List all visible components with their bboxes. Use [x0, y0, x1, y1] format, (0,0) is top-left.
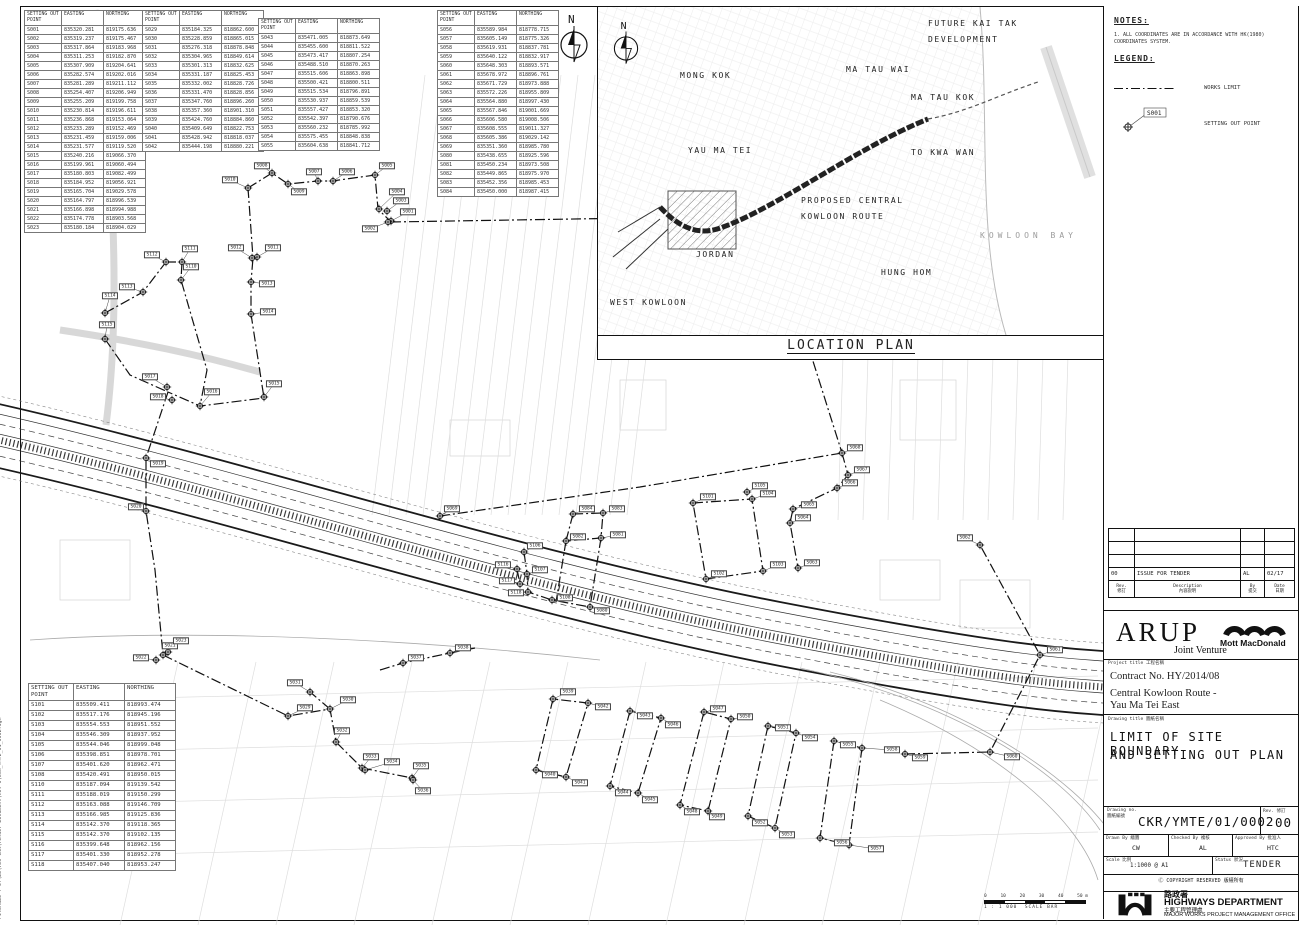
table-row: S113835166.985819125.836 [29, 811, 176, 821]
setting-out-point-marker [833, 484, 841, 492]
table-row: S031835276.318818878.848 [143, 44, 264, 53]
table-row: S044835455.600818811.522 [259, 43, 380, 52]
setting-out-point-marker [789, 505, 797, 513]
table-row: S030835228.859818865.015 [143, 35, 264, 44]
scale-bar-tick: 50 m [1077, 894, 1088, 899]
scale-bar-tick: 10 [1000, 894, 1005, 899]
table-row: S058835619.931818837.781 [438, 44, 559, 53]
table-row: S051835557.427818853.320 [259, 106, 380, 115]
setting-out-point-marker [569, 510, 577, 518]
setting-out-point-marker [244, 184, 252, 192]
table-row: S021835166.898818994.988 [25, 206, 146, 215]
table-row: S004835311.253819182.870 [25, 53, 146, 62]
table-row: S045835473.417818807.254 [259, 52, 380, 61]
scale-value: 1:1000 @ A1 [1130, 863, 1168, 869]
setting-out-point-marker [586, 603, 594, 611]
revision-header-row: Rev.修訂 Description內容說明 By提交 Date日期 [1109, 581, 1295, 598]
table-row: S017835180.803819082.499 [25, 170, 146, 179]
setting-out-point-marker [901, 750, 909, 758]
svg-text:S001: S001 [1147, 110, 1162, 117]
table-row: S103835554.553818951.552 [29, 721, 176, 731]
setting-out-point-marker [676, 801, 684, 809]
setting-out-point-marker [284, 712, 292, 720]
table-row: S006835282.574819202.016 [25, 71, 146, 80]
setting-out-point-marker [139, 288, 147, 296]
table-row: S105835544.046818999.048 [29, 741, 176, 751]
table-row: S061835678.972818896.761 [438, 71, 559, 80]
table-row: S012835233.289819152.469 [25, 125, 146, 134]
setting-out-point-marker [260, 393, 268, 401]
table-row: S108835420.491818950.015 [29, 771, 176, 781]
drawn-by-cell: Drawn By 繪圖 CW [1104, 834, 1168, 856]
setting-out-point-marker [786, 519, 794, 527]
coordinate-table: SETTING OUT POINTEASTINGNORTHINGS0568355… [437, 10, 559, 197]
table-row: S104835546.309818937.952 [29, 731, 176, 741]
table-row: S066835606.580819008.506 [438, 116, 559, 125]
checked-by-label: Checked By 複核 [1171, 835, 1210, 841]
table-row: S019835165.704819029.578 [25, 188, 146, 197]
setting-out-point-marker [523, 570, 531, 578]
setting-out-point-marker [284, 180, 292, 188]
setting-out-point-marker [702, 575, 710, 583]
table-row: S011835236.868819153.064 [25, 116, 146, 125]
works-limit-label: WORKS LIMIT [1204, 85, 1240, 91]
table-row: S041835428.942818818.037 [143, 134, 264, 143]
works-limit-chain [748, 726, 796, 828]
project-title-box: Project title 工程名稱 Contract No. HY/2014/… [1104, 658, 1298, 715]
table-row: S084835450.000818987.415 [438, 188, 559, 197]
scale-bar-tick: 0 [984, 894, 987, 899]
setting-out-point-marker [986, 748, 994, 756]
rev-number: 00 [1275, 815, 1292, 830]
table-row: S081835450.234818973.508 [438, 161, 559, 170]
table-row: S062835671.729818973.888 [438, 80, 559, 89]
scale-bar: 01020304050 m 1 : 1 000 SCALE BAR [984, 894, 1100, 910]
table-row: S029835184.325818862.600 [143, 26, 264, 35]
setting-out-point-marker [268, 169, 276, 177]
arup-logo: ARUP [1116, 617, 1200, 648]
setting-out-point-marker [727, 715, 735, 723]
highways-department-logo [1116, 891, 1154, 917]
works-limit-chain [590, 538, 601, 607]
setting-out-point-marker [562, 773, 570, 781]
table-row: S083835452.356818985.453 [438, 179, 559, 188]
coordinate-table: SETTING OUT POINTEASTINGNORTHINGS0018353… [24, 10, 146, 233]
table-row: S080835438.655818925.596 [438, 152, 559, 161]
works-limit-chain [680, 712, 731, 811]
table-row: S115835142.370819102.135 [29, 831, 176, 841]
setting-out-point-marker [329, 177, 337, 185]
table-row: S023835180.184818904.029 [25, 224, 146, 233]
table-row: S118835407.040818953.247 [29, 861, 176, 871]
setting-out-point-marker [247, 310, 255, 318]
inset-place-label: DEVELOPMENT [928, 35, 999, 44]
setting-out-point-marker [168, 396, 176, 404]
approved-by-label: Approved By 批准人 [1235, 835, 1281, 841]
coordinate-table: SETTING OUT POINTEASTINGNORTHINGS0298351… [142, 10, 264, 152]
approved-by-value: HTC [1267, 844, 1279, 852]
location-plan-title: LOCATION PLAN [598, 335, 1104, 360]
coordinate-table-1: SETTING OUT POINTEASTINGNORTHINGS0018353… [24, 10, 146, 233]
project-name-line1: Central Kowloon Route - [1110, 688, 1216, 699]
setting-out-point-marker [858, 744, 866, 752]
highways-department-box: 路政署 HIGHWAYS DEPARTMENT 主要工程管理處 MAJOR WO… [1104, 888, 1298, 919]
setting-out-point-marker [152, 656, 160, 664]
inset-place-label: KOWLOON ROUTE [801, 212, 884, 221]
table-row: S102835517.176818945.196 [29, 711, 176, 721]
drawing-no-label: Drawing no.圖紙編號 [1107, 808, 1137, 819]
table-row: S005835307.909819204.641 [25, 62, 146, 71]
table-row: S101835509.411818993.474 [29, 701, 176, 711]
table-row: S067835608.555819011.327 [438, 125, 559, 134]
table-row: S043835471.005818873.649 [259, 34, 380, 43]
setting-out-point-marker [520, 548, 528, 556]
setting-out-point-marker [584, 699, 592, 707]
hyd-office: MAJOR WORKS PROJECT MANAGEMENT OFFICE [1164, 912, 1295, 918]
table-row: S035835332.002818828.726 [143, 80, 264, 89]
inset-place-label: JORDAN [696, 250, 735, 259]
table-row: S048835500.421818800.511 [259, 79, 380, 88]
setting-out-point-marker [976, 541, 984, 549]
drawing-title-box: Drawing title 圖紙名稱 LIMIT OF SITE BOUNDAR… [1104, 714, 1298, 807]
people-row: Drawn By 繪圖 CW Checked By 複核 AL Approved… [1104, 834, 1298, 857]
table-row: S008835254.407819206.949 [25, 89, 146, 98]
setting-out-point-marker [532, 766, 540, 774]
table-row: S063835572.226818955.809 [438, 89, 559, 98]
scale-status-row: Scale 比例 1:1000 @ A1 Status 狀況 TENDER [1104, 856, 1298, 875]
scale-label: Scale 比例 [1106, 857, 1131, 863]
setting-out-point-marker [314, 177, 322, 185]
setting-out-point-marker [700, 708, 708, 716]
project-title-label: Project title 工程名稱 [1108, 660, 1164, 666]
drawing-title-line2: AND SETTING OUT PLAN [1110, 748, 1285, 762]
drawn-by-label: Drawn By 繪圖 [1106, 835, 1139, 841]
inset-place-label: HUNG HOM [881, 268, 932, 277]
setting-out-point-marker [771, 824, 779, 832]
table-row: S117835401.330818952.278 [29, 851, 176, 861]
works-limit-chain [166, 262, 207, 406]
table-row: S037835347.760818896.260 [143, 98, 264, 107]
works-limit-chain [536, 699, 588, 777]
table-row: S001835320.281819175.636 [25, 26, 146, 35]
setting-out-point-marker [792, 729, 800, 737]
north-arrow: N [554, 12, 594, 68]
table-row: S106835398.851818978.701 [29, 751, 176, 761]
table-row: S049835515.534818796.891 [259, 88, 380, 97]
works-limit-chain [566, 513, 603, 541]
table-row: S020835164.797818996.539 [25, 197, 146, 206]
inset-place-label: FUTURE KAI TAK [928, 19, 1018, 28]
setting-out-point-marker [845, 841, 853, 849]
setting-out-point-marker [794, 564, 802, 572]
scale-bar-caption: 1 : 1 000 SCALE BAR [984, 905, 1100, 910]
table-row: S107835401.620818962.471 [29, 761, 176, 771]
table-row: S057835605.149818775.326 [438, 35, 559, 44]
setting-out-point-marker [599, 509, 607, 517]
table-row: S039835424.760818884.860 [143, 116, 264, 125]
table-row: S042835444.198818880.221 [143, 143, 264, 152]
title-block-column: NOTES: 1. ALL COORDINATES ARE IN ACCORDA… [1103, 6, 1298, 919]
setting-out-point-marker [606, 782, 614, 790]
location-plan-inset: N FUTURE KAI TAKDEVELOPMENTMONG KOKMA TA… [597, 6, 1105, 360]
approved-by-cell: Approved By 批准人 HTC [1232, 834, 1299, 856]
setting-out-point-marker [101, 309, 109, 317]
table-row: S014835231.577819119.520 [25, 143, 146, 152]
works-limit-chain [905, 545, 1040, 754]
scale-bar-tick: 40 [1058, 894, 1063, 899]
table-row: S056835589.984818778.715 [438, 26, 559, 35]
print-info-vertical-text: Printed by : 13/01/2017 Filename : J:\28… [0, 717, 3, 919]
table-row: S059835640.122818832.917 [438, 53, 559, 62]
table-row: S007835281.289819211.112 [25, 80, 146, 89]
table-row: S009835255.209819199.758 [25, 98, 146, 107]
inset-place-label: YAU MA TEI [688, 146, 752, 155]
status-value: TENDER [1243, 860, 1282, 870]
inset-place-label: MA TAU KOK [911, 93, 975, 102]
setting-out-point-marker [689, 499, 697, 507]
coordinate-table-3: SETTING OUT POINTEASTINGNORTHINGS0438354… [258, 18, 380, 151]
coordinate-table-4: SETTING OUT POINTEASTINGNORTHINGS0568355… [437, 10, 559, 197]
setting-out-point-marker [178, 258, 186, 266]
setting-out-point-marker [597, 534, 605, 542]
table-row: S010835230.814819196.611 [25, 107, 146, 116]
table-row: S047835515.606818863.898 [259, 70, 380, 79]
scale-bar-segments [984, 900, 1086, 905]
inset-place-label: TO KWA WAN [911, 148, 975, 157]
table-row: S034835331.187818825.453 [143, 71, 264, 80]
drawn-by-value: CW [1132, 844, 1140, 852]
table-row: S002835319.237819175.467 [25, 35, 146, 44]
drawing-sheet: { "compass": {"label": "N"}, "notes": { … [0, 0, 1301, 925]
drawing-title-label: Drawing title 圖紙名稱 [1108, 716, 1164, 722]
scale-bar-tick: 20 [1020, 894, 1025, 899]
rev-cell: Rev. 修訂 00 [1260, 806, 1299, 834]
checked-by-cell: Checked By 複核 AL [1168, 834, 1233, 856]
table-row: S068835605.386819029.142 [438, 134, 559, 143]
setting-out-point-marker [247, 278, 255, 286]
setting-out-point-marker [744, 812, 752, 820]
consultant-logo-box: ARUP Mott MacDonald Joint Venture [1104, 610, 1298, 660]
works-limit-chain [146, 392, 168, 655]
table-row: S022835174.778818903.568 [25, 215, 146, 224]
table-row: S032835304.965818849.614 [143, 53, 264, 62]
table-row: S054835575.455818848.838 [259, 133, 380, 142]
rev-cell-label: Rev. 修訂 [1263, 808, 1286, 814]
table-row: S065835567.846819001.669 [438, 107, 559, 116]
setting-out-point-marker [399, 659, 407, 667]
project-name-line2: Yau Ma Tei East [1110, 700, 1179, 711]
inset-place-label: WEST KOWLOON [610, 298, 687, 307]
setting-out-point-marker [748, 495, 756, 503]
inset-place-labels: FUTURE KAI TAKDEVELOPMENTMONG KOKMA TAU … [598, 7, 1104, 335]
table-row: S050835530.937818859.539 [259, 97, 380, 106]
mott-macdonald-wordmark: Mott MacDonald [1220, 638, 1286, 648]
setting-out-point-marker [383, 207, 391, 215]
coordinate-table-5: SETTING OUT POINTEASTINGNORTHINGS1018355… [28, 683, 176, 871]
legend-heading: LEGEND: [1114, 54, 1155, 63]
table-row: S036835331.470818828.856 [143, 89, 264, 98]
works-limit-chain [168, 188, 264, 406]
setting-out-point-marker [657, 714, 665, 722]
revision-row: 00 ISSUE FOR TENDER AL 02/17 [1109, 568, 1295, 581]
contract-number: Contract No. HY/2014/08 [1110, 671, 1219, 682]
setting-out-point-marker [196, 402, 204, 410]
setting-out-point-marker [743, 488, 751, 496]
mott-macdonald-arcs-logo [1222, 618, 1286, 636]
inset-place-label: MA TAU WAI [846, 65, 910, 74]
svg-text:N: N [568, 13, 575, 26]
setting-out-point-label: SETTING OUT POINT [1204, 121, 1260, 127]
setting-out-point-marker [142, 507, 150, 515]
setting-out-point-marker [371, 171, 379, 179]
inset-place-label: MONG KOK [680, 71, 731, 80]
setting-out-point-marker [1036, 651, 1044, 659]
status-label: Status 狀況 [1215, 857, 1243, 863]
setting-out-point-marker [626, 707, 634, 715]
table-row: S018835184.952819056.921 [25, 179, 146, 188]
setting-out-point-marker [759, 567, 767, 575]
table-row: S069835351.360818985.780 [438, 143, 559, 152]
table-row: S015835240.216819066.370 [25, 152, 146, 161]
table-row: S003835317.864819183.968 [25, 44, 146, 53]
setting-out-point-marker [634, 789, 642, 797]
setting-out-point-marker [446, 649, 454, 657]
table-row: S114835142.370819118.365 [29, 821, 176, 831]
scale-bar-ticks: 01020304050 m [984, 894, 1088, 899]
notes-item: 1. ALL COORDINATES ARE IN ACCORDANCE WIT… [1114, 32, 1292, 45]
works-limit-chain [693, 499, 763, 579]
joint-venture-label: Joint Venture [1174, 645, 1227, 656]
works-limit-chain [380, 648, 475, 670]
setting-out-point-marker [562, 537, 570, 545]
drawing-number-row: Drawing no.圖紙編號 CKR/YMTE/01/0002 Rev. 修訂… [1104, 806, 1298, 835]
coordinate-table: SETTING OUT POINTEASTINGNORTHINGS0438354… [258, 18, 380, 151]
setting-out-point-marker [704, 807, 712, 815]
coordinate-table-2: SETTING OUT POINTEASTINGNORTHINGS0298351… [142, 10, 264, 152]
inset-place-label: KOWLOON BAY [980, 231, 1077, 240]
setting-out-point-sample: S001 [1116, 104, 1176, 134]
works-limit-chain [440, 453, 842, 516]
setting-out-point-marker [838, 449, 846, 457]
filename-line: Filename : J:\28\786-CKR\Tender Document… [0, 717, 3, 919]
scale-bar-tick: 30 [1039, 894, 1044, 899]
table-row: S033835301.313818832.625 [143, 62, 264, 71]
table-row: S111835188.019819150.299 [29, 791, 176, 801]
works-limit-sample [1114, 88, 1176, 89]
setting-out-point-marker [177, 276, 185, 284]
revision-table: 00 ISSUE FOR TENDER AL 02/17 Rev.修訂 Desc… [1108, 528, 1295, 598]
table-row: S052835542.397818790.676 [259, 115, 380, 124]
drawing-number: CKR/YMTE/01/0002 [1138, 814, 1274, 829]
table-row: S110835187.094819139.542 [29, 781, 176, 791]
table-row: S053835560.232818785.992 [259, 124, 380, 133]
inset-place-label: PROPOSED CENTRAL [801, 196, 904, 205]
table-row: S055835604.638818841.712 [259, 142, 380, 151]
table-row: S060835648.303818893.571 [438, 62, 559, 71]
setting-out-point-marker [830, 737, 838, 745]
table-row: S046835488.510818870.263 [259, 61, 380, 70]
table-row: S082835449.865818975.970 [438, 170, 559, 179]
table-row: S038835357.360818901.310 [143, 107, 264, 116]
table-row: S064835564.880818997.430 [438, 98, 559, 107]
checked-by-value: AL [1199, 844, 1207, 852]
table-row: S040835409.649818822.753 [143, 125, 264, 134]
table-row: S116835399.648818962.156 [29, 841, 176, 851]
status-cell: Status 狀況 TENDER [1212, 856, 1299, 874]
setting-out-point-marker [816, 834, 824, 842]
works-limit-chain [556, 541, 566, 602]
setting-out-point-marker [516, 580, 524, 588]
setting-out-point-marker [549, 695, 557, 703]
notes-heading: NOTES: [1114, 16, 1149, 25]
table-row: S112835163.088819146.709 [29, 801, 176, 811]
works-limit-chain [820, 741, 862, 845]
table-row: S016835199.961819060.494 [25, 161, 146, 170]
table-row: S013835231.459819159.006 [25, 134, 146, 143]
setting-out-point-marker [764, 722, 772, 730]
coordinate-table: SETTING OUT POINTEASTINGNORTHINGS1018355… [28, 683, 176, 871]
works-limit-chain [610, 711, 661, 793]
